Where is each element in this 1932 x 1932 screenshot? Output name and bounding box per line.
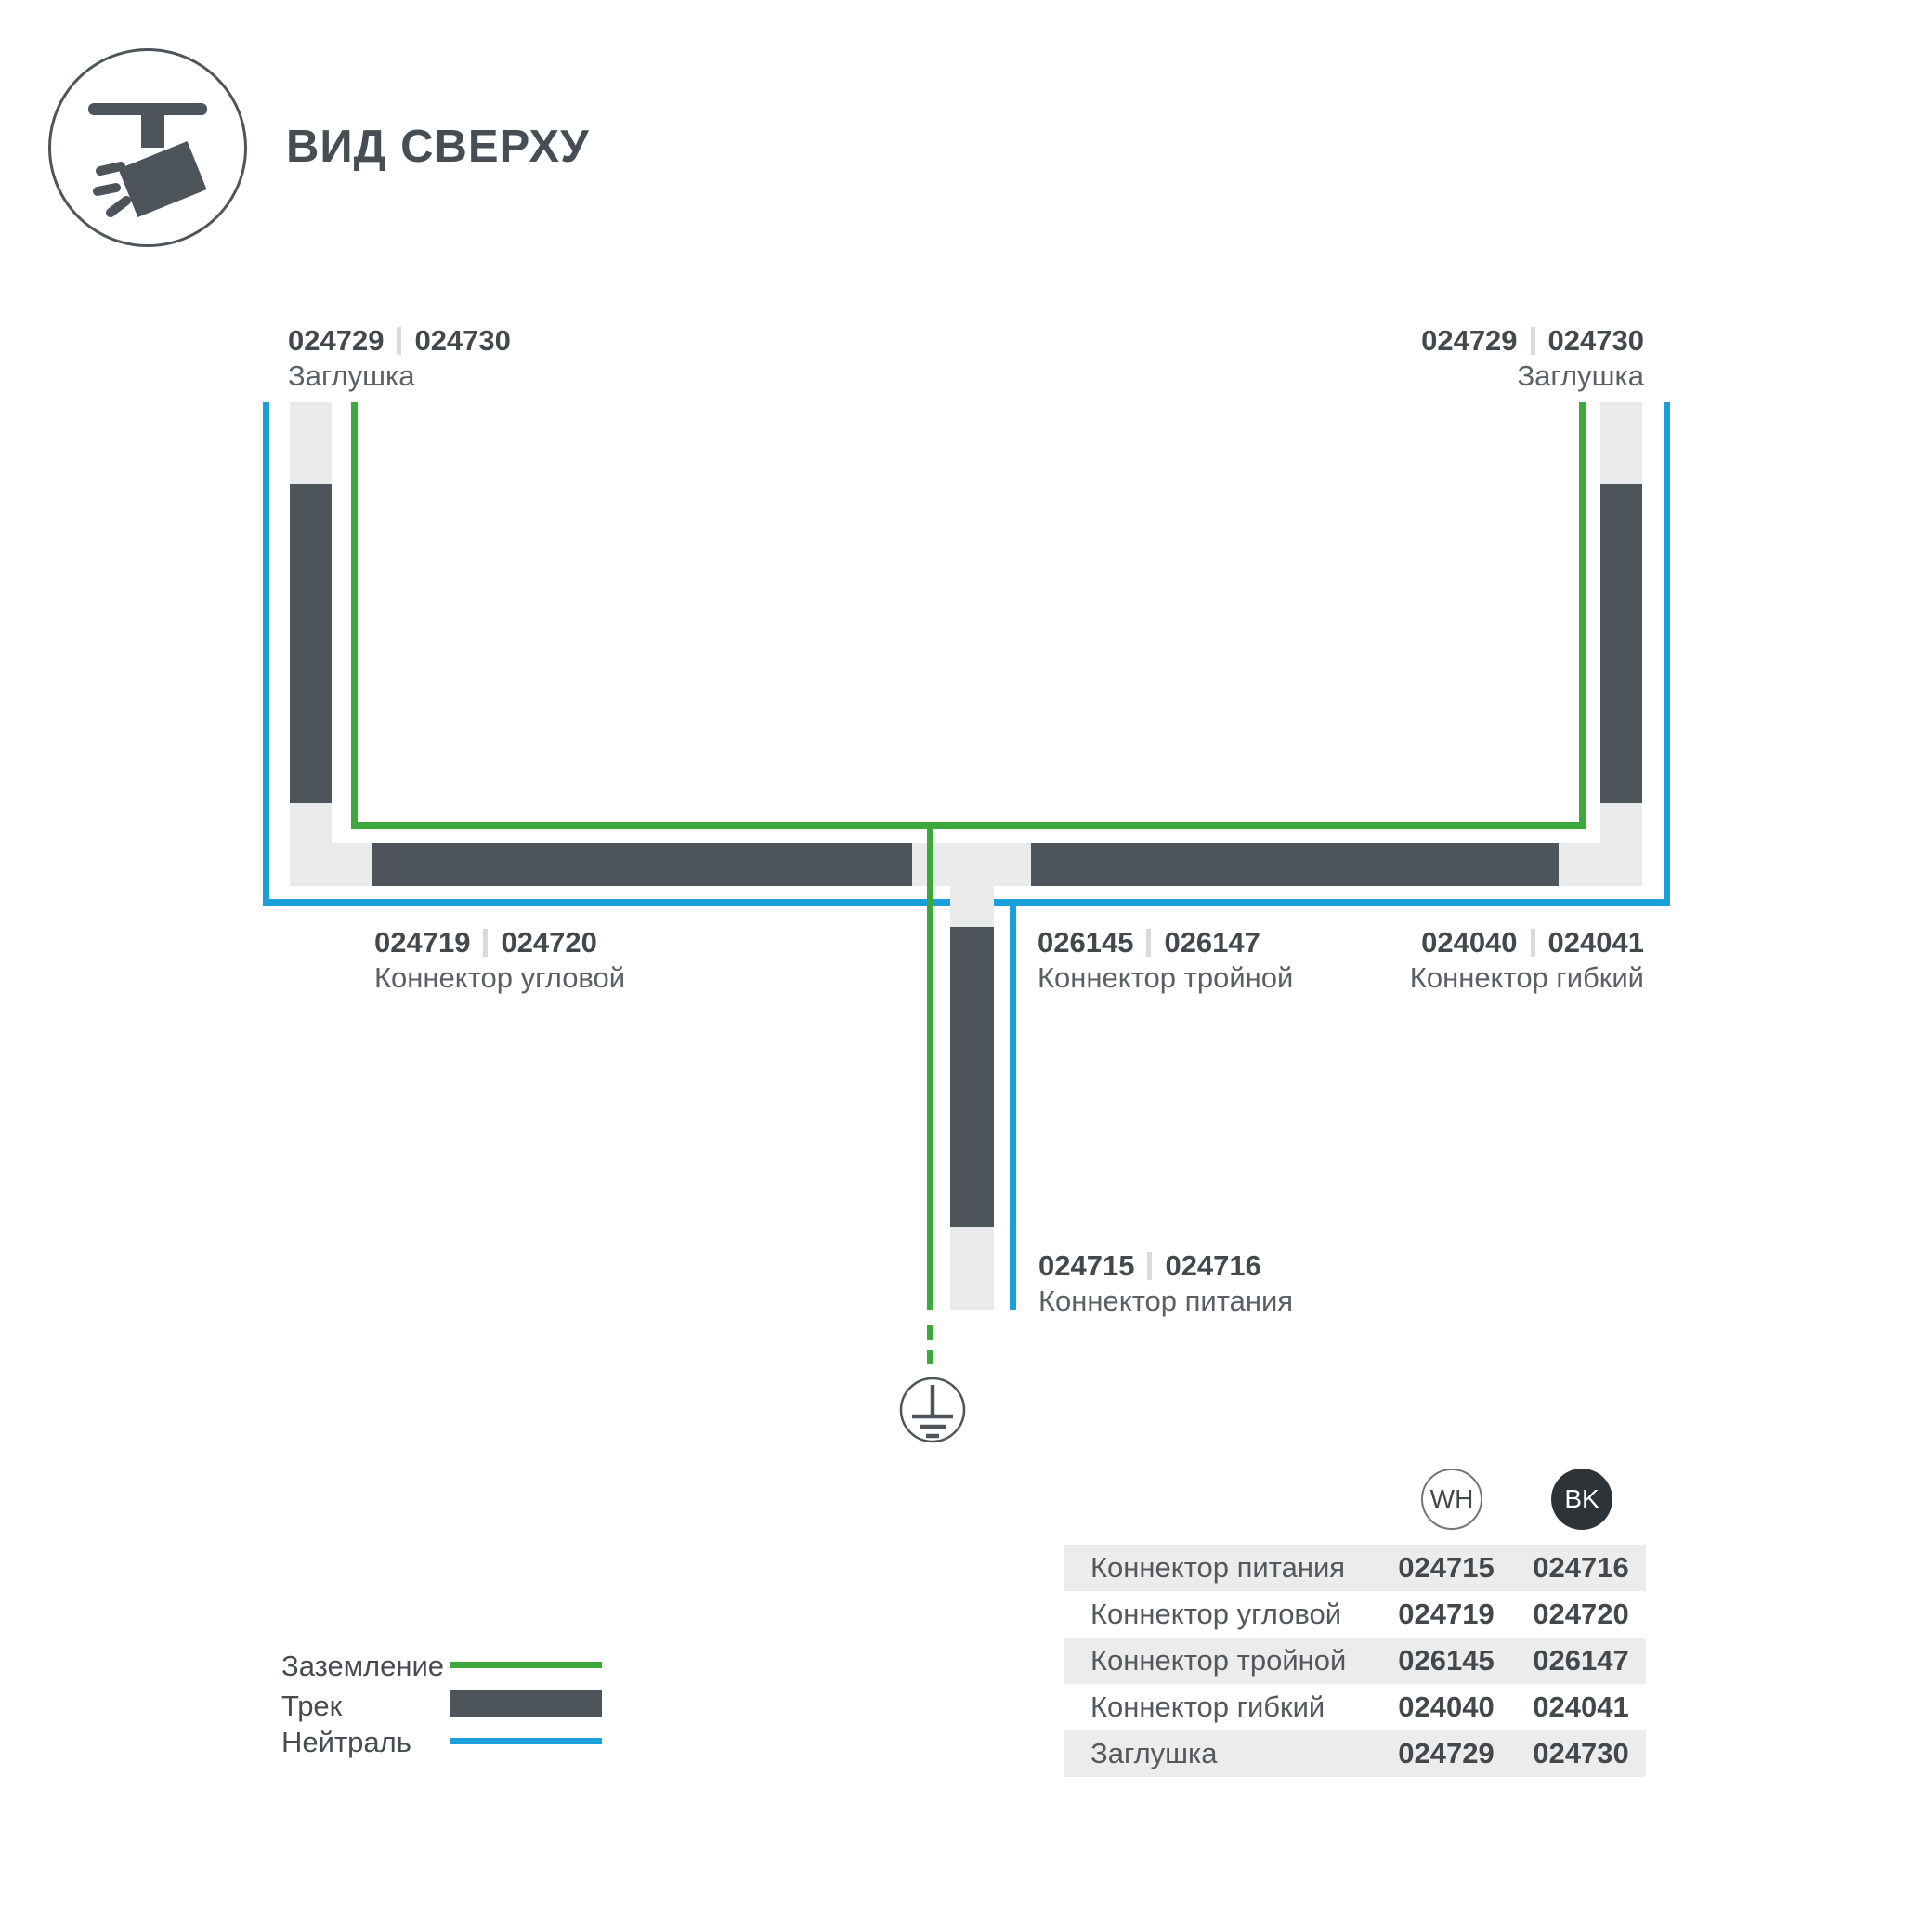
code-wh: 024715	[1038, 1249, 1134, 1283]
endcap-top-right	[1600, 402, 1642, 484]
part-name: Коннектор гибкий	[1410, 962, 1644, 994]
bk-label: BK	[1564, 1484, 1599, 1514]
power-codes: 024715 024716	[1038, 1250, 1293, 1282]
row-part-name: Коннектор тройной	[1064, 1644, 1377, 1677]
ground-line-center-vertical	[927, 822, 933, 1310]
label-flex-connector: 024040 024041 Коннектор гибкий	[1410, 927, 1644, 994]
row-code-bk: 024716	[1516, 1551, 1646, 1585]
corner-connector-left-horizontal	[332, 843, 372, 886]
row-part-name: Коннектор питания	[1064, 1551, 1377, 1585]
code-wh: 026145	[1038, 926, 1133, 959]
legend-neutral-swatch	[450, 1738, 602, 1744]
label-triple-connector: 026145 026147 Коннектор тройной	[1038, 927, 1293, 994]
table-row: Коннектор питания 024715 024716	[1064, 1545, 1646, 1591]
row-part-name: Коннектор угловой	[1064, 1598, 1377, 1631]
table-row: Заглушка 024729 024730	[1064, 1730, 1646, 1777]
wh-label: WH	[1430, 1484, 1474, 1514]
corner-connector-right-vertical	[1600, 803, 1642, 886]
ground-line-dash-2	[927, 1350, 933, 1364]
table-row: Коннектор тройной 026145 026147	[1064, 1638, 1646, 1684]
track-right-vertical	[1600, 484, 1642, 803]
parts-table: Коннектор питания 024715 024716 Коннекто…	[1064, 1545, 1646, 1777]
label-corner-connector: 024719 024720 Коннектор угловой	[374, 927, 625, 994]
flex-codes: 024040 024041	[1410, 927, 1644, 959]
code-wh: 024719	[374, 926, 470, 959]
track-bottom-right	[1031, 843, 1559, 886]
neutral-line-right-vertical	[1664, 402, 1670, 906]
endcap-left-codes: 024729 024730	[288, 325, 511, 357]
code-separator	[397, 327, 401, 355]
color-column-white-badge: WH	[1421, 1469, 1482, 1530]
code-separator	[1531, 929, 1535, 957]
part-name: Коннектор тройной	[1038, 962, 1293, 994]
table-row: Коннектор угловой 024719 024720	[1064, 1591, 1646, 1638]
earth-ground-symbol	[898, 1376, 967, 1444]
code-wh: 024729	[288, 324, 384, 358]
ground-line-horizontal	[351, 822, 1586, 829]
row-part-name: Заглушка	[1064, 1737, 1377, 1770]
part-name: Коннектор питания	[1038, 1286, 1293, 1317]
track-layout-diagram: 024729 024730 Заглушка 024729 024730 Заг…	[0, 0, 1932, 1449]
neutral-line-bottom-right	[994, 899, 1670, 906]
ground-line-left-vertical	[351, 402, 358, 829]
legend-ground-swatch	[450, 1662, 602, 1668]
code-separator	[483, 929, 488, 957]
track-left-vertical	[290, 484, 332, 803]
row-code-wh: 026145	[1377, 1644, 1516, 1677]
code-bk: 024041	[1548, 926, 1644, 959]
code-bk: 024720	[501, 926, 596, 959]
label-endcap-right: 024729 024730 Заглушка	[1421, 325, 1644, 392]
code-bk: 024716	[1165, 1249, 1260, 1283]
label-endcap-left: 024729 024730 Заглушка	[288, 325, 511, 392]
ground-line-right-vertical	[1579, 402, 1586, 829]
endcap-top-left	[290, 402, 332, 484]
row-code-bk: 024041	[1516, 1690, 1646, 1724]
row-code-bk: 024730	[1516, 1737, 1646, 1770]
corner-connector-right-horizontal	[1559, 843, 1600, 886]
part-name: Коннектор угловой	[374, 962, 625, 994]
ground-line-dash-1	[927, 1325, 933, 1340]
code-bk: 024730	[1548, 324, 1644, 358]
table-row: Коннектор гибкий 024040 024041	[1064, 1684, 1646, 1730]
code-separator	[1147, 1252, 1152, 1280]
code-bk: 024730	[414, 324, 510, 358]
neutral-line-bottom-left	[263, 899, 950, 906]
track-bottom-left	[372, 843, 912, 886]
code-separator	[1531, 327, 1535, 355]
code-bk: 026147	[1164, 926, 1260, 959]
row-code-wh: 024715	[1377, 1551, 1516, 1585]
row-code-wh: 024040	[1377, 1690, 1516, 1724]
corner-codes: 024719 024720	[374, 927, 625, 959]
endcap-right-codes: 024729 024730	[1421, 325, 1644, 357]
corner-connector-left-vertical	[290, 803, 332, 886]
legend-track-label: Трек	[281, 1690, 342, 1723]
row-code-bk: 026147	[1516, 1644, 1646, 1677]
page: ВИД СВЕРХУ	[0, 0, 1932, 1932]
t-connector-stem	[950, 886, 994, 927]
legend-neutral-label: Нейтраль	[281, 1726, 411, 1759]
code-wh: 024040	[1421, 926, 1517, 959]
row-part-name: Коннектор гибкий	[1064, 1690, 1377, 1724]
neutral-line-left-vertical	[263, 402, 269, 906]
label-power-connector: 024715 024716 Коннектор питания	[1038, 1250, 1293, 1317]
color-column-black-badge: BK	[1551, 1469, 1612, 1530]
legend-ground-label: Заземление	[281, 1650, 444, 1683]
legend-track-swatch	[450, 1690, 602, 1717]
code-separator	[1146, 929, 1151, 957]
neutral-line-stub-vertical	[1010, 899, 1016, 1310]
row-code-wh: 024729	[1377, 1737, 1516, 1770]
part-name: Заглушка	[1421, 360, 1644, 392]
code-wh: 024729	[1421, 324, 1517, 358]
row-code-wh: 024719	[1377, 1598, 1516, 1631]
triple-codes: 026145 026147	[1038, 927, 1293, 959]
endcap-power-stub	[950, 1227, 994, 1310]
part-name: Заглушка	[288, 360, 511, 392]
track-power-stub	[950, 927, 994, 1227]
row-code-bk: 024720	[1516, 1598, 1646, 1631]
